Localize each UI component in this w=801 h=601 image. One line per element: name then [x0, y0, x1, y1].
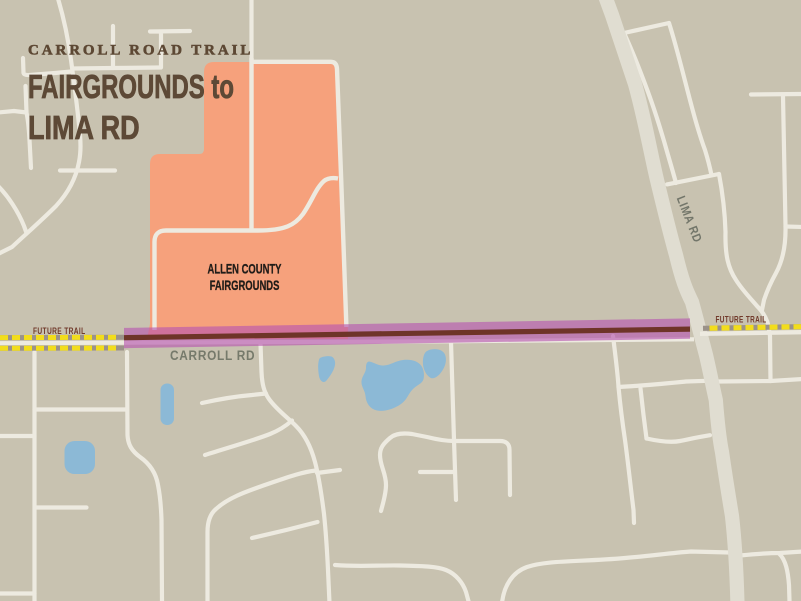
- svg-text:ALLEN COUNTY: ALLEN COUNTY: [208, 262, 282, 277]
- svg-text:FUTURE TRAIL: FUTURE TRAIL: [33, 326, 86, 336]
- svg-text:FAIRGROUNDS: FAIRGROUNDS: [210, 278, 280, 293]
- svg-text:FAIRGROUNDS to: FAIRGROUNDS to: [28, 69, 234, 106]
- svg-text:LIMA RD: LIMA RD: [28, 111, 140, 147]
- svg-text:FUTURE TRAIL: FUTURE TRAIL: [716, 314, 767, 324]
- svg-text:CARROLL ROAD TRAIL: CARROLL ROAD TRAIL: [28, 43, 253, 59]
- svg-text:CARROLL RD: CARROLL RD: [170, 347, 255, 363]
